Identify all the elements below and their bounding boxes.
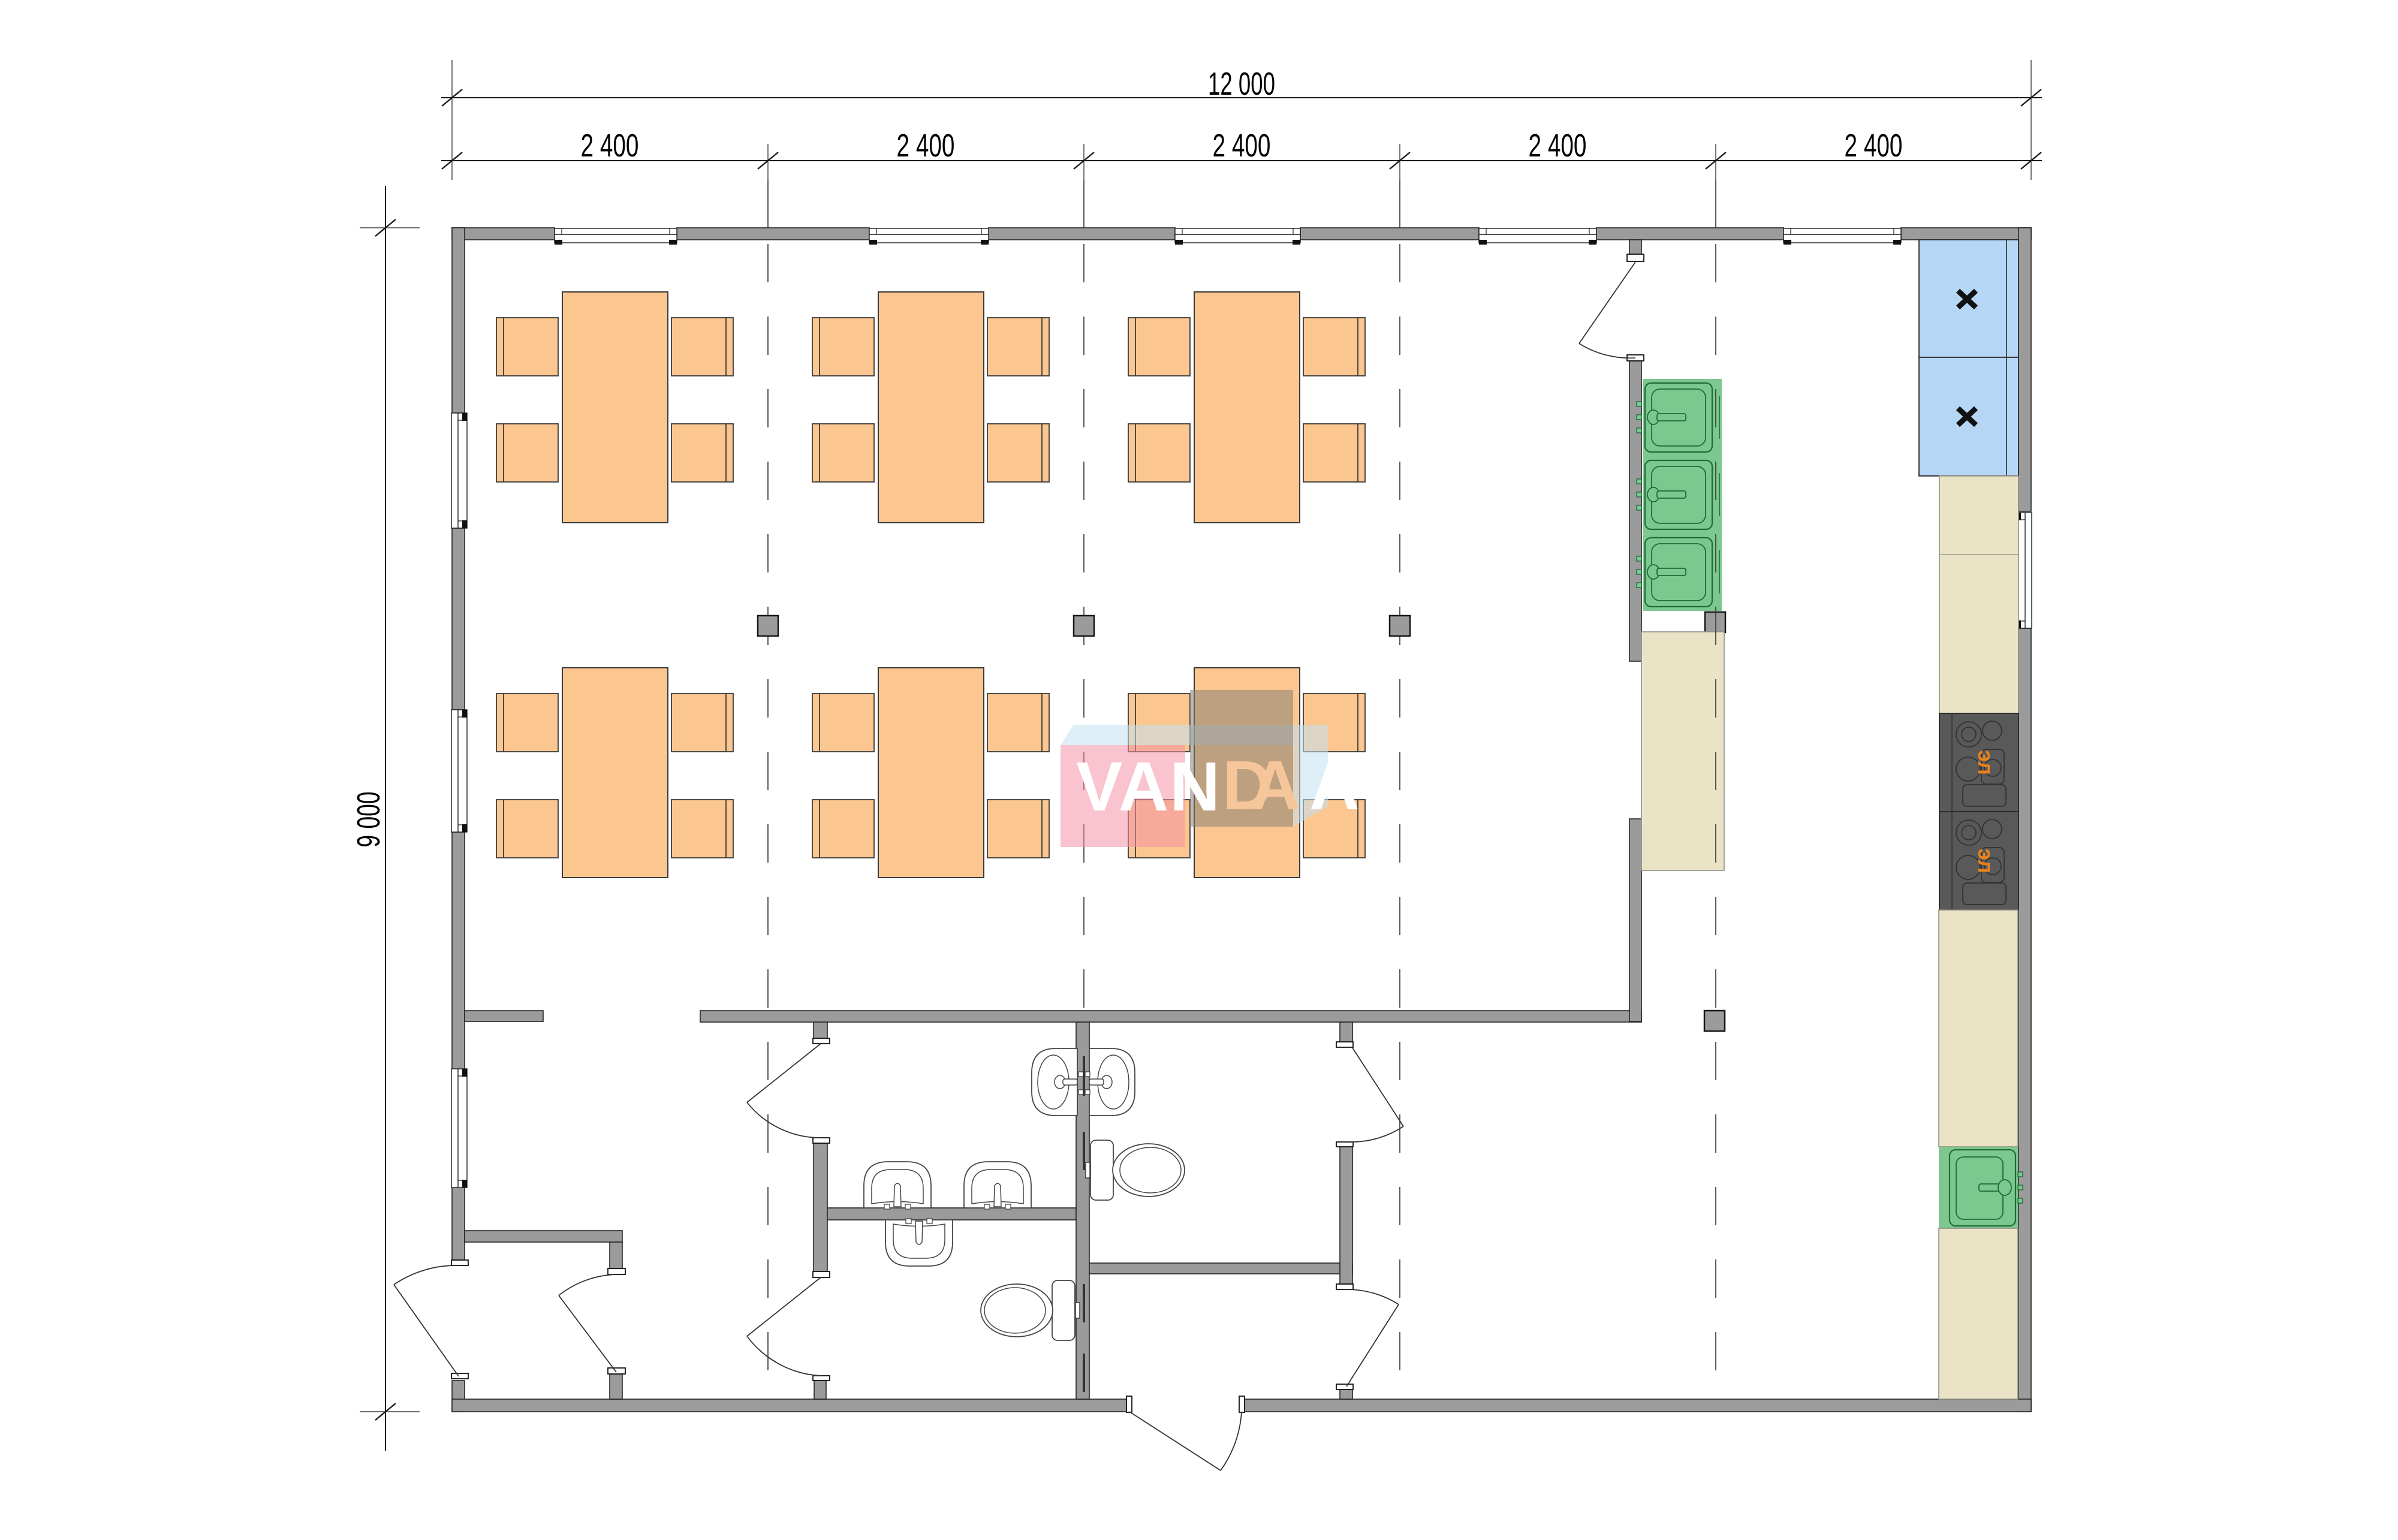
svg-text:12 000: 12 000	[1208, 66, 1275, 102]
svg-text:эл: эл	[1974, 750, 1998, 775]
svg-text:VAN: VAN	[1076, 748, 1220, 825]
svg-text:9 000: 9 000	[351, 792, 387, 848]
svg-text:2 400: 2 400	[897, 128, 955, 164]
svg-text:эл: эл	[1974, 848, 1998, 873]
svg-text:A: A	[1309, 746, 1360, 824]
svg-text:DA: DA	[1222, 746, 1300, 824]
svg-text:2 400: 2 400	[1213, 128, 1271, 164]
svg-text:2 400: 2 400	[1529, 128, 1587, 164]
svg-text:2 400: 2 400	[581, 128, 639, 164]
svg-text:2 400: 2 400	[1845, 128, 1903, 164]
